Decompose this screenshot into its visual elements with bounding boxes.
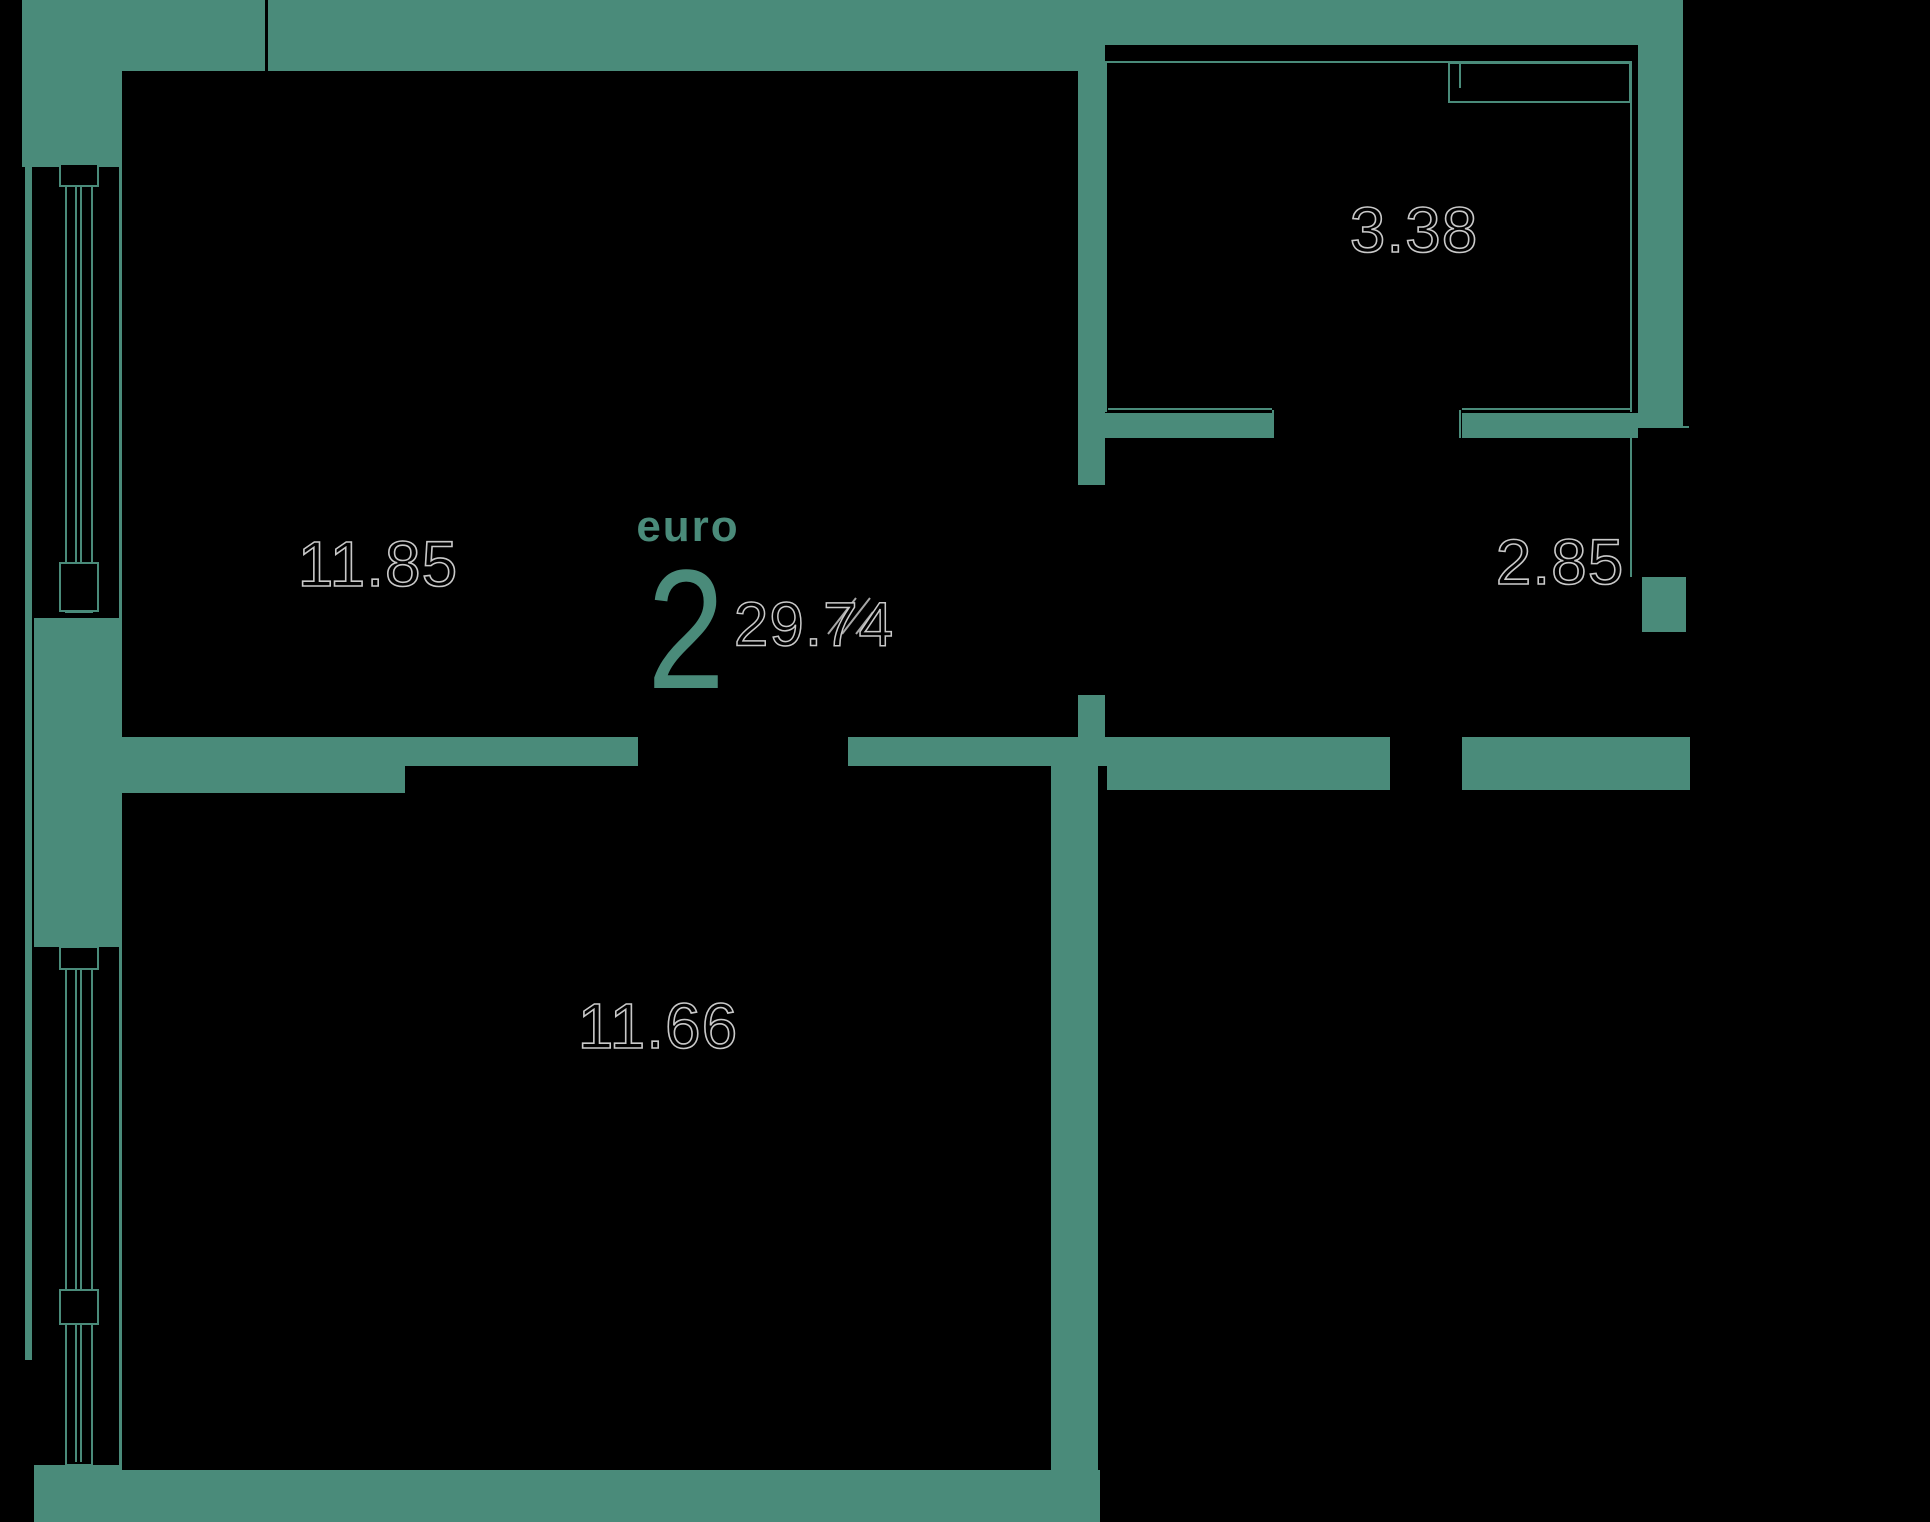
kitchen-area-label: 3.38: [1350, 193, 1479, 267]
unit-total-area: 29.74: [734, 590, 894, 661]
wall-kitchen-left-upper: [1078, 0, 1105, 485]
wall-top-left: [22, 0, 1078, 71]
bedroom-area-label: 11.66: [578, 989, 738, 1063]
bedroom-inner-left-line: [119, 793, 122, 1470]
hall-inner-right-line: [1630, 438, 1632, 577]
kitchen-inner-right-line: [1630, 63, 1632, 412]
wall-top-right: [1078, 0, 1683, 45]
wall-right-stub: [1642, 577, 1686, 632]
wall-middle-far-right: [1462, 737, 1690, 790]
window-upper-top-cap: [60, 164, 98, 186]
vent-duct-box: [1449, 63, 1630, 102]
kitchen-door-jamb-right: [1459, 410, 1461, 438]
floor-plan: 11.85 3.38 2.85 11.66 euro 2 29.74: [0, 0, 1930, 1522]
pier-left-middle: [34, 618, 119, 947]
window-upper-sill-box: [60, 563, 98, 611]
window-lower: [60, 947, 98, 1465]
wall-middle-right: [848, 737, 1390, 766]
wall-kitchen-bottom-left-stub: [1105, 413, 1272, 438]
wall-bottom: [58, 1470, 1100, 1522]
wall-kitchen-left-lower: [1078, 695, 1105, 740]
window-upper: [60, 164, 98, 612]
wall-middle-right-thick: [1107, 766, 1390, 790]
window-upper-frame: [66, 167, 92, 612]
unit-rooms-count: 2: [647, 545, 725, 715]
kitchen-inner-bottom-line-left: [1108, 408, 1272, 410]
parapet-line-left: [25, 70, 32, 1360]
vent-duct: [1449, 63, 1630, 102]
kitchen-door-jamb-left: [1272, 410, 1274, 438]
wall-kitchen-bottom-right-stub: [1462, 413, 1638, 438]
wall-middle-left-thick: [118, 766, 405, 793]
kitchen-right-wall-cap-line: [1638, 426, 1689, 428]
wall-kitchen-right: [1638, 0, 1683, 428]
wall-lower-right: [1051, 766, 1098, 1522]
living-room-area-label: 11.85: [298, 527, 458, 601]
kitchen-inner-left-line: [1105, 63, 1107, 412]
hallway-area-label: 2.85: [1496, 525, 1625, 599]
kitchen-inner-bottom-line-right: [1462, 408, 1630, 410]
window-lower-frame: [66, 950, 92, 1465]
wall-joint-line: [265, 0, 268, 71]
window-lower-top-cap: [60, 947, 98, 969]
living-room-inner-left-line: [119, 71, 122, 737]
window-lower-sill-box: [60, 1290, 98, 1324]
wall-middle-left: [118, 737, 638, 766]
pier-left-top: [22, 0, 120, 167]
floor-plan-drawing: [0, 0, 1930, 1522]
